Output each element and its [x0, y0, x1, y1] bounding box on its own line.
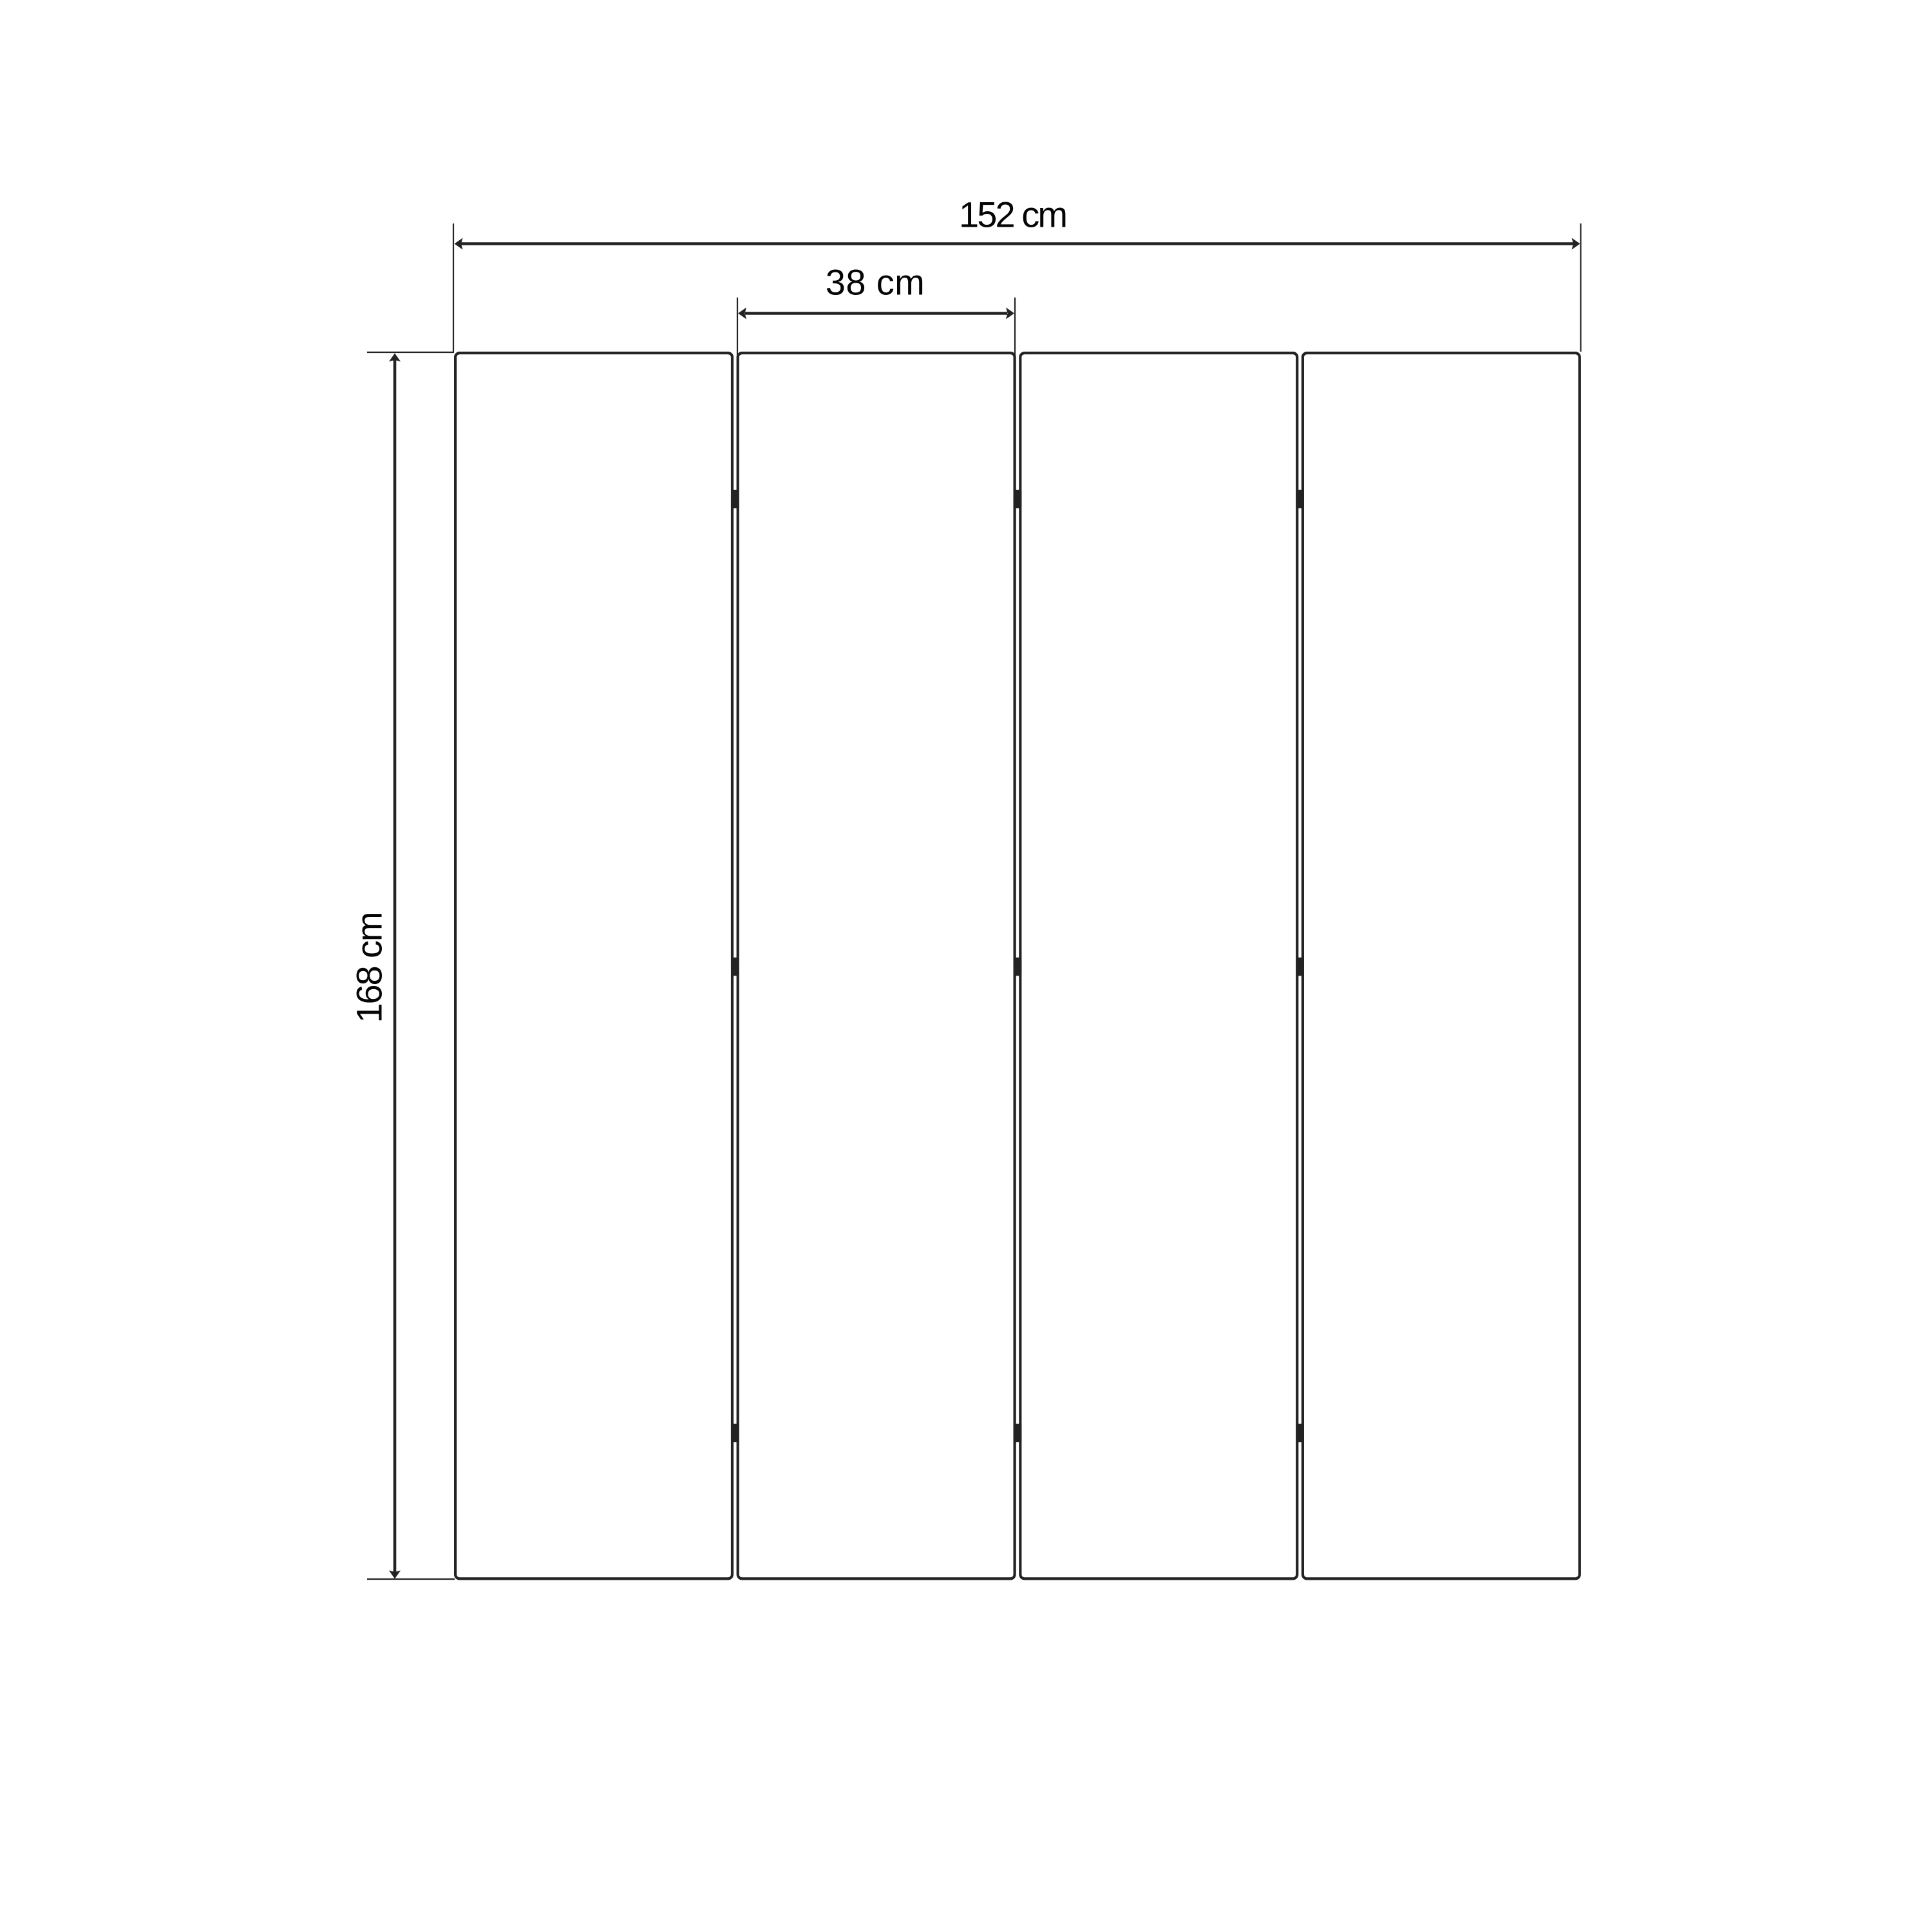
svg-text:168 cm: 168 cm: [348, 912, 389, 1023]
svg-text:38 cm: 38 cm: [826, 261, 925, 302]
svg-text:152 cm: 152 cm: [959, 194, 1068, 235]
